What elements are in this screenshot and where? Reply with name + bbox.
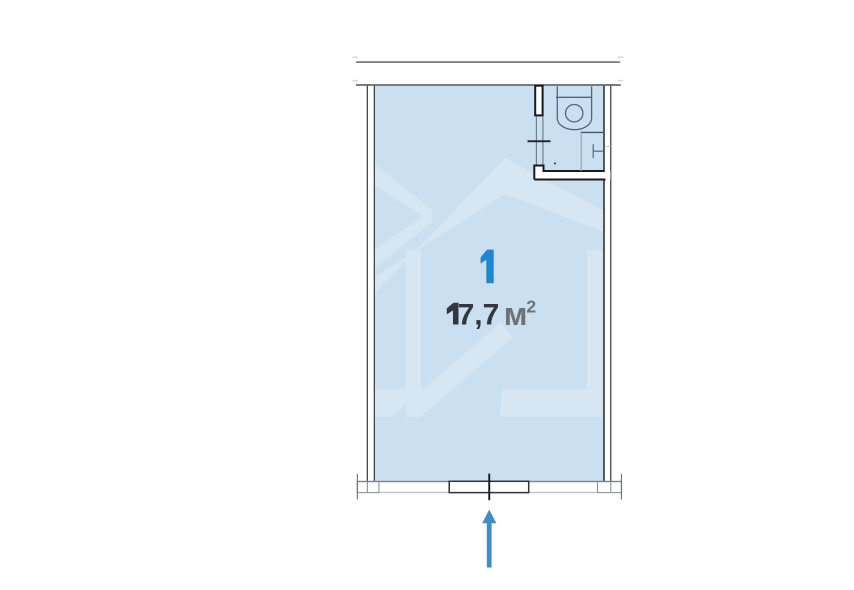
- svg-text:2: 2: [526, 296, 536, 316]
- svg-text:м: м: [504, 296, 528, 332]
- svg-text:7,7: 7,7: [458, 299, 500, 332]
